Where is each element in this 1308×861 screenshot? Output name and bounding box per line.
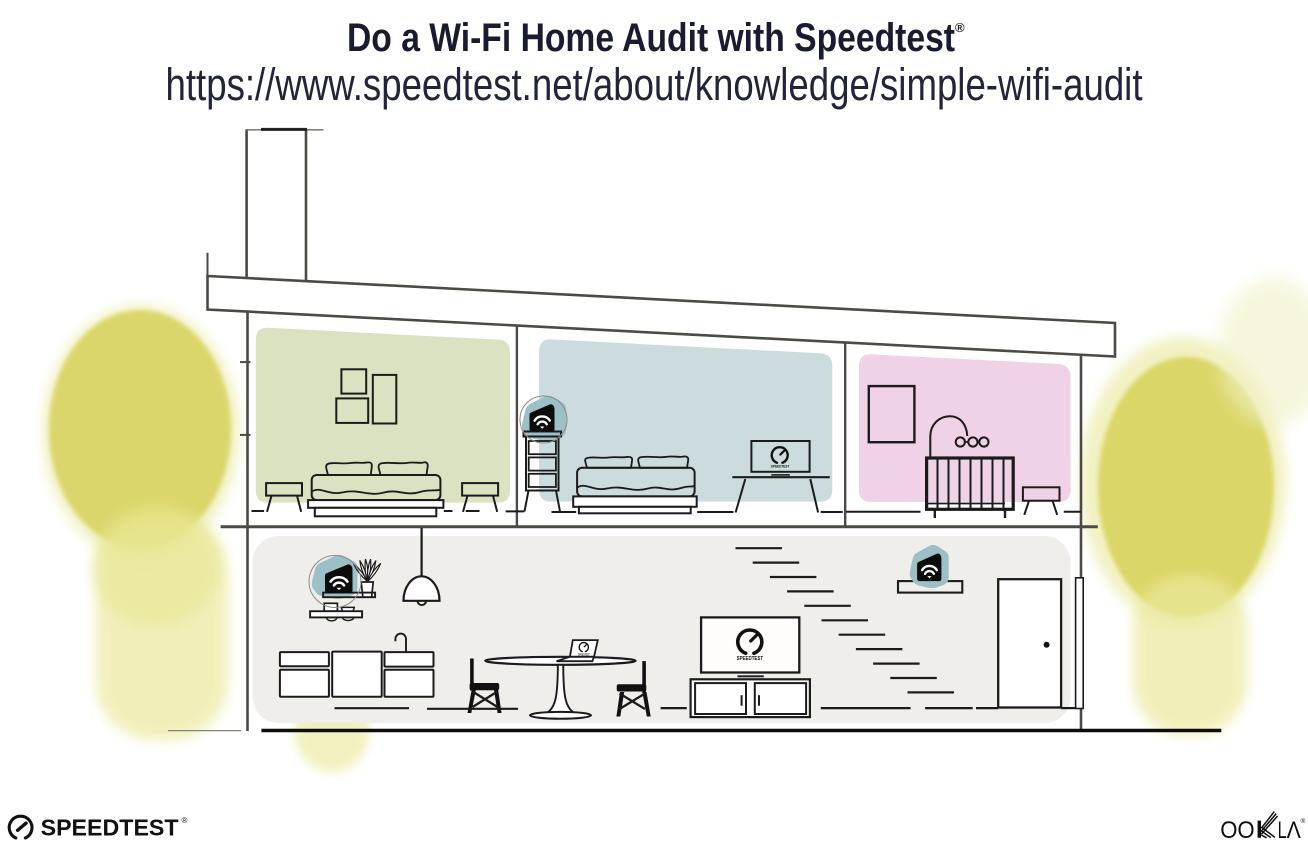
svg-text:SPEEDTEST: SPEEDTEST bbox=[737, 656, 764, 662]
svg-text:SPEEDTEST: SPEEDTEST bbox=[771, 465, 790, 469]
svg-text:Do a Wi-Fi Home Audit with Spe: Do a Wi-Fi Home Audit with Speedtest bbox=[347, 16, 955, 60]
svg-text:OO: OO bbox=[1220, 817, 1255, 844]
svg-text:®: ® bbox=[1301, 817, 1306, 825]
svg-text:Λ: Λ bbox=[1287, 817, 1302, 844]
svg-text:®: ® bbox=[955, 20, 965, 35]
svg-text:®: ® bbox=[182, 816, 188, 825]
svg-text:SPEEDTEST: SPEEDTEST bbox=[41, 815, 179, 841]
svg-text:L: L bbox=[1278, 817, 1287, 844]
svg-text:https://www.speedtest.net/abou: https://www.speedtest.net/about/knowledg… bbox=[166, 59, 1143, 110]
svg-text:SPEEDTEST: SPEEDTEST bbox=[578, 652, 590, 656]
